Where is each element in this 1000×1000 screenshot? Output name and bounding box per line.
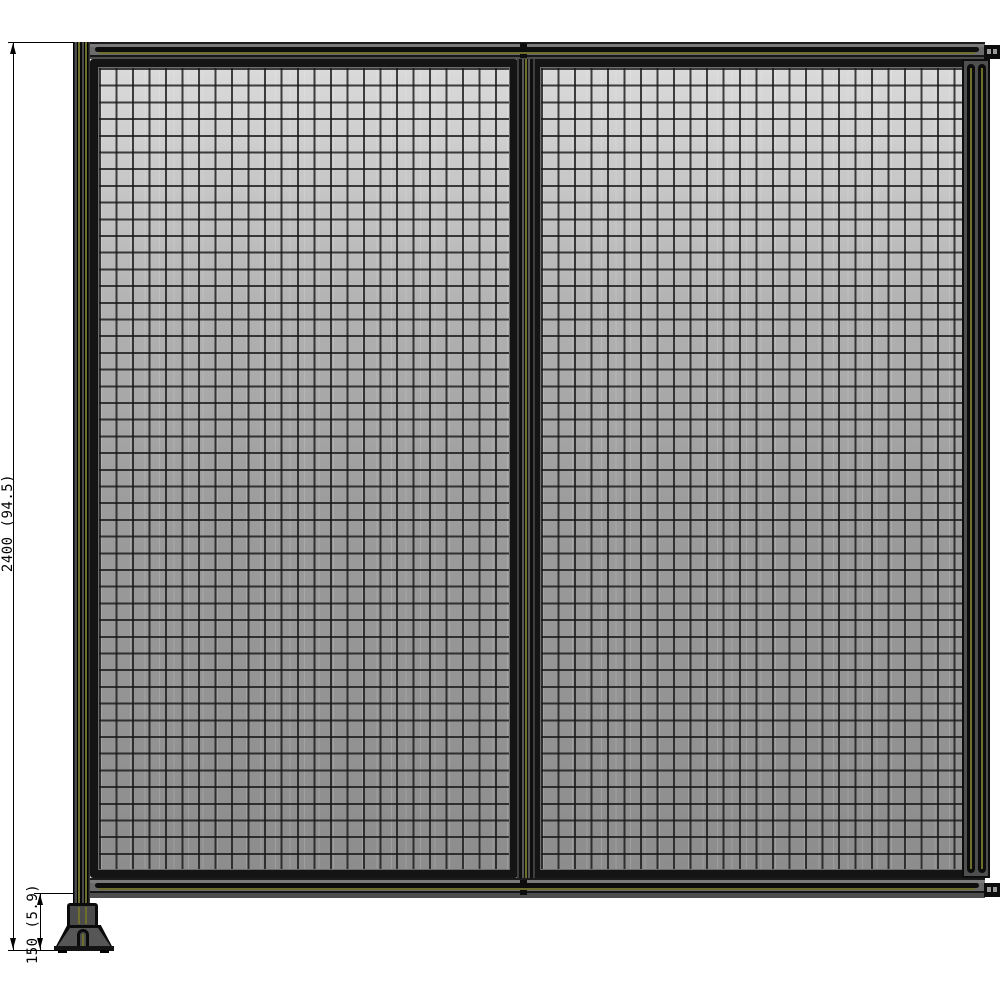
- center-divider-post: [517, 59, 535, 878]
- foot-pad-right: [100, 950, 109, 953]
- bracket-pin: [993, 49, 997, 54]
- foot-socket: [67, 903, 98, 928]
- foot-groove: [85, 907, 87, 924]
- connector-bracket-bottom-right: [984, 883, 1000, 897]
- bracket-pin: [987, 49, 991, 54]
- bracket-pin: [987, 887, 991, 892]
- bracket-pin: [993, 887, 997, 892]
- post-tslot-groove: [970, 68, 972, 869]
- foot-groove: [78, 907, 80, 924]
- rail-tslot-groove: [99, 52, 975, 54]
- mesh-panel-right: [532, 59, 972, 878]
- dim-label-foot-height: 150 (5.9): [25, 884, 41, 964]
- right-end-post: [962, 59, 990, 878]
- bottom-rail: [90, 878, 985, 898]
- mesh-panel-left: [90, 59, 518, 878]
- post-tslot-groove: [981, 68, 983, 869]
- arrowhead-down: [10, 938, 16, 949]
- top-rail: [90, 42, 985, 59]
- dim-label-overall-height: 2400 (94.5): [0, 474, 16, 572]
- post-tslot-channel: [967, 64, 975, 873]
- wire-mesh-left: [98, 67, 510, 870]
- foot-pad-left: [58, 950, 67, 953]
- extension-line-top: [8, 42, 74, 43]
- wire-mesh-right: [540, 67, 964, 870]
- left-upright-post: [73, 42, 90, 912]
- arrowhead-up: [10, 43, 16, 54]
- post-tslot-channel: [978, 64, 986, 873]
- technical-drawing-canvas: 2400 (94.5) 150 (5.9): [0, 0, 1000, 1000]
- connector-bracket-top-right: [984, 45, 1000, 59]
- rail-tslot-groove: [99, 888, 975, 890]
